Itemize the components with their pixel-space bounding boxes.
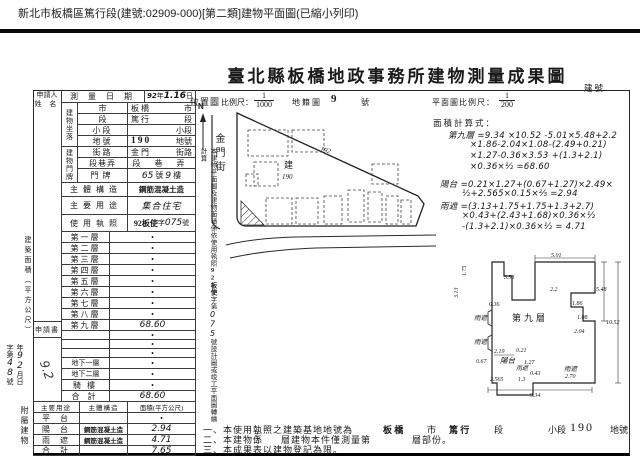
license-stamp: 92板使 [134,218,158,229]
lane-value: 段 巷 弄 [128,158,196,169]
survey-date-label: 測量日期 [62,90,145,103]
street-value: 金 門街路 [128,147,196,158]
annex-total-label: 合 計 [33,446,80,456]
application-stamp-hand: 9.2 [37,358,56,380]
parcel-building-label: 建 [284,159,293,170]
floor-row-value: • [110,254,196,265]
application-no-column: 字第48號 [5,344,15,402]
dim-top: 5.01 [551,253,562,259]
side-note-mid: 字第 [209,296,216,310]
license-mid: 字 [158,218,165,228]
location-group-label: 建物坐落 [62,103,78,147]
floor-row-value: • [110,276,196,287]
door-floor-suffix: 樓 [173,170,181,181]
calc-line: ×0.36×½ =68.60 [470,162,550,172]
application-no-suffix: 號 [5,378,15,385]
applicant-name-cell: 申請人 姓 名 [33,90,62,322]
side-note-stamp: 92板使 [209,267,216,296]
door-floor-hand: 9 [165,171,171,181]
dim-b7: 0.43 [530,370,541,377]
floor-row-label: 第九層 [62,320,110,331]
header-divider [0,29,640,33]
dim-b1: 2.19 [494,349,505,355]
application-no-hand: 48 [5,358,15,378]
location-section-value: 篤 行段 [128,114,196,125]
annex-row-structure: 鋼筋混凝土造 [80,435,128,446]
floor-row-label: 第四層 [62,265,110,276]
floor-row-label: 第五層 [62,276,110,287]
canopy-label: 雨遮 [564,365,579,373]
annex-row-structure: 鋼筋混凝土造 [80,424,128,435]
floor-row-label [62,340,110,349]
note-1-section-suffix: 段 [494,423,503,436]
document-title: 臺北縣板橋地政事務所建物測量成果圖 [225,62,570,87]
dim-v2: 0.36 [489,302,500,308]
canopy-label: 雨遮 [474,338,489,346]
note-1-parcel-suffix: 地號 [610,423,628,436]
floor-row-label: 第三層 [62,254,110,265]
survey-day-hand: 1.16 [164,91,186,101]
section-suffix: 段 [184,114,192,125]
annex-row-use: 雨 遮 [33,435,80,446]
location-parcel-label: 地號 [78,136,128,147]
floor-row-value: • [110,349,196,358]
dim-right: 5.48 [596,286,607,293]
canopy-label: 雨遮 [474,314,489,322]
license-value: 92板使字075號 [128,215,196,232]
dim-b5: 2.565 [490,377,504,383]
street-name-label: 金門街 [211,133,226,191]
location-parcel-value: 190地號 [128,136,196,147]
calc-line: ×1.86-2.04×1.08-(2.49+0.21) [470,140,607,150]
location-city-value: 板 橋市 [128,103,196,114]
annex-row-structure [80,413,128,424]
usage-label: 主要用途 [62,197,128,215]
door-no-hand: 65 [142,171,153,181]
road-curve-bottom [230,246,436,258]
structure-label: 主體構造 [62,183,128,197]
north-label: N [198,102,204,111]
canopy-label: 雨遮 [516,364,529,372]
floor-row-label: 第六層 [62,287,110,298]
plan-scale-label: 平面圖比例尺： [432,97,495,108]
dim-l2: 1.75 [462,266,468,277]
location-map-svg: N 建 190 192 [196,92,436,262]
door-group-label: 建物門牌 [62,147,78,183]
dim-b8: 2.70 [565,374,576,380]
lane-label: 段巷弄 [78,158,128,169]
note-1-city: 板 橋 [383,423,403,436]
floor-row-value: • [110,265,196,276]
dim-bottom: 9.34 [530,392,541,398]
section-value: 篤 行 [131,114,149,125]
door-no-suffix: 號 [155,170,163,181]
floor-row-value: • [110,331,196,340]
dim-step1: 2.2 [550,287,558,293]
application-stamp-cell: 9.2 [33,338,62,402]
floor-row-value: • [110,243,196,254]
parcel-no-label: 190 [282,173,293,181]
note-1-section: 篤 行 [449,423,469,436]
floor-row-value: • [110,298,196,309]
adjacent-parcel-label: 192 [320,145,333,155]
road-curve-top [226,235,436,245]
side-note-hand: 075 [208,310,217,339]
survey-year-hand: 92 [147,92,157,100]
note-2-post: 層部份。 [412,433,452,446]
dim-b3: 0.67 [476,359,488,365]
application-no-pre: 字第 [5,344,15,358]
floor-row-label: 第一層 [62,232,110,243]
floor-row-value: • [110,340,196,349]
annex-side-label: 附屬建物 [19,406,30,454]
note-1-parcel-no: 190 [570,420,594,435]
floor-total-label: 合計 [62,391,110,402]
annex-total-structure [80,446,128,456]
floor-row-label [62,349,110,358]
plan-scale-den: 200 [499,100,515,109]
floor-row-label: 第七層 [62,298,110,309]
parcel-suffix: 地號 [176,136,192,147]
plan-scale-num: 1 [505,92,509,100]
license-no-hand: 075 [165,218,182,228]
subsection-suffix: 小段 [176,125,192,136]
dim-total: 10.52 [606,320,620,326]
floor-row-value: • [110,380,196,391]
dim-step4: 2.04 [574,328,585,335]
north-arrow-icon [200,113,206,150]
applicant-label-line1: 申請人 [35,91,60,100]
location-section-label: 段 [78,114,128,125]
city-value: 板 橋 [131,103,149,114]
floor-row-value-ninth: 68.60 [110,320,196,331]
dim-b6: 1.3 [518,377,526,383]
parcel-number: 190 [131,136,151,146]
structure-value: 鋼筋混凝土造 [128,183,196,197]
floor-row-value: • [110,232,196,243]
floor-row-value: • [110,287,196,298]
note-1-subsection: 小段 [548,423,566,436]
floor-row-label: 第八層 [62,309,110,320]
location-subsection-label: 小段 [78,125,128,136]
plan-floor-label: 第九層 [512,312,548,323]
annex-header-use: 主要用途 [33,402,80,413]
subject-building-hatch [241,201,264,225]
annex-row-use: 平 台 [33,413,80,424]
floor-row-label: 第二層 [62,243,110,254]
door-no-value: 65號9樓 [128,169,196,183]
floor-row-label: 地下一層 [62,358,110,369]
calc-line: ×1.27-0.36×3.53 +(1.3+2.1) [470,151,603,161]
dim-v1: 3.53 [503,275,515,281]
floor-area-side-label: 建築面積（平方公尺） [23,236,33,400]
license-label: 使用執照 [62,215,128,232]
dim-l1: 3.13 [454,288,460,300]
dim-b2: 0.21 [516,348,527,354]
street-name: 金 門 [131,147,149,158]
survey-year-suffix: 年 [157,91,164,101]
annex-row-use: 陽 台 [33,424,80,435]
floor-row-value: • [110,358,196,369]
floor-plan-svg: 5.01 5.48 10.52 2.2 1.86 1.08 2.04 9.34 … [438,250,638,398]
floor-row-label: 騎樓 [62,380,110,391]
street-label: 街路 [78,147,128,158]
floor-row-value: • [110,369,196,380]
plan-scale-fraction: 1200 [499,92,515,109]
dashed-building-outlines [246,130,411,224]
floor-row-label [62,331,110,340]
usage-value: 集合住宅 [128,197,196,215]
application-cell: 申請書 [33,322,62,338]
door-no-label: 門牌 [78,169,128,183]
survey-date-value: 92年1.16日 [145,90,196,103]
annex-row-area: 2.94 [128,424,196,435]
dim-step2: 1.86 [572,301,583,307]
calc-title: 面積計算式： [433,117,496,129]
calc-line: -(1.3+2.1)×0.36×½ = 4.71 [462,222,586,232]
applicant-label-line2: 姓 名 [35,100,60,109]
scanned-survey-document: 新北市板橋區篤行段(建號:02909-000)[第二類]建物平面圖(已縮小列印)… [0,0,640,462]
annex-header-structure: 主體構造 [80,402,128,413]
calc-line: ×0.43+(2.43+1.68)×0.36×½ [462,211,595,221]
annex-row-area: 4.71 [128,435,196,446]
calc-line: ½+2.565×0.15×⅔ =2.94 [462,189,578,199]
annex-header-area: 面積(平方公尺) [128,402,196,413]
balcony-label: 陽台 [500,356,515,365]
floor-total-value: 68.60 [110,391,196,402]
annex-row-area: • [128,413,196,424]
note-3: 三、本成果表以建物登記為限。 [203,443,343,456]
location-subsection-value: 小段 [128,125,196,136]
print-header-title: 新北市板橋區篤行段(建號:02909-000)[第二類]建物平面圖(已縮小列印) [18,5,358,21]
street-suffix: 街路 [176,147,192,158]
floor-row-value: • [110,309,196,320]
license-suffix: 號 [182,218,189,228]
annex-total-value: 7.65 [128,446,196,456]
location-city-label: 市 [78,103,128,114]
floor-row-label: 地下二層 [62,369,110,380]
dim-step3: 1.08 [577,315,588,321]
